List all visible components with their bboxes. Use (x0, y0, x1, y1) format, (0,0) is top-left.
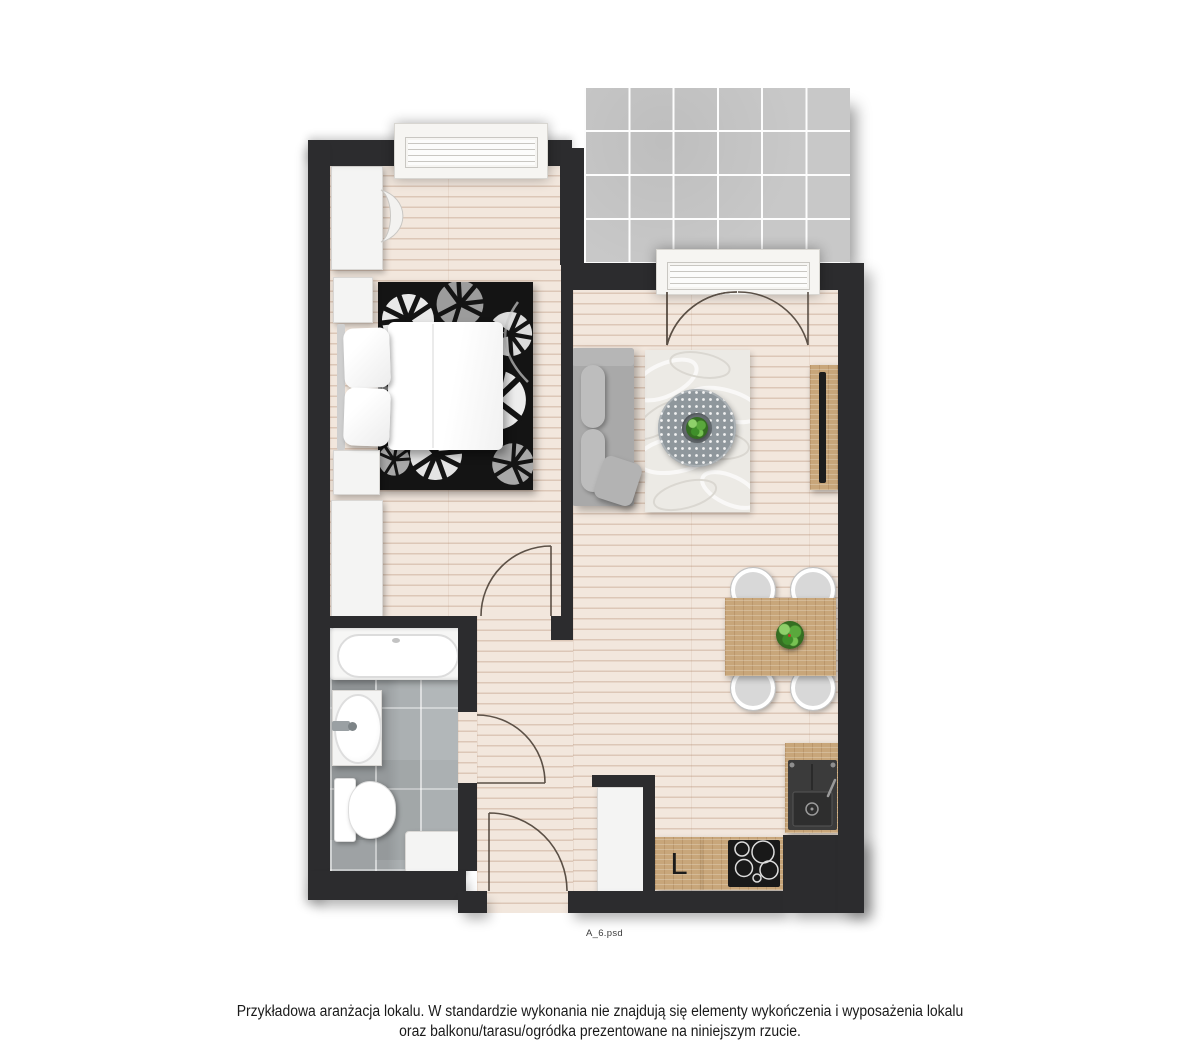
hall-closet (597, 787, 645, 892)
caption: Przykładowa aranżacja lokalu. W standard… (60, 1002, 1140, 1041)
kitchen-sink (788, 760, 837, 830)
potted-plant-dining (776, 621, 804, 649)
bedroom-window-glazing (405, 137, 538, 168)
bedroom-window (394, 123, 548, 179)
wall-closet-right (643, 775, 655, 892)
potted-plant-living (686, 417, 708, 439)
cooktop (728, 840, 780, 887)
balcony-door-window (656, 249, 820, 295)
balcony-door-glazing (667, 262, 810, 290)
wall-shelf-crescent (379, 188, 407, 244)
file-label: A_6.psd (586, 928, 623, 939)
balcony-tiles (584, 88, 850, 264)
bed-duvet (388, 322, 503, 450)
wall-living-top-left (561, 263, 667, 290)
tv (819, 372, 826, 483)
wall-bathroom-right-lower (458, 783, 477, 871)
washing-machine (405, 831, 465, 874)
bed-pillow (343, 327, 391, 389)
toilet-bowl (348, 781, 396, 839)
wall-balcony-left (560, 148, 584, 265)
faucet-head (348, 722, 357, 731)
wardrobe-top (331, 166, 383, 270)
wall-bedroom-living-separator (561, 265, 573, 640)
wall-bathroom-right-upper (458, 616, 477, 712)
wall-left-outer (308, 140, 330, 900)
wardrobe-bottom (331, 500, 383, 617)
nightstand-top (333, 277, 373, 323)
wall-hall-bottom-left (458, 891, 487, 913)
hall-floor (477, 616, 573, 913)
wall-bedroom-bottom (308, 616, 477, 628)
sofa-back-cushion (581, 365, 605, 428)
plant-red-speck (788, 634, 791, 637)
wall-separator-foot (551, 616, 573, 640)
wall-right-outer (838, 263, 864, 913)
bathtub-drain (392, 638, 400, 643)
sofa-armrest (572, 348, 634, 366)
bed-pillow (343, 387, 391, 447)
wall-bathroom-bottom (308, 871, 466, 900)
bathroom-door-threshold (458, 712, 477, 783)
caption-line-2: oraz balkonu/tarasu/ogródka prezentowane… (60, 1022, 1140, 1042)
fridge-spot-label: L (655, 837, 703, 890)
caption-line-1: Przykładowa aranżacja lokalu. W standard… (60, 1002, 1140, 1022)
wall-kitchen-bottom (568, 891, 787, 913)
floor-plan-page: L (0, 0, 1200, 1060)
nightstand-bottom (333, 450, 380, 495)
bed-duvet-crease (432, 324, 434, 448)
